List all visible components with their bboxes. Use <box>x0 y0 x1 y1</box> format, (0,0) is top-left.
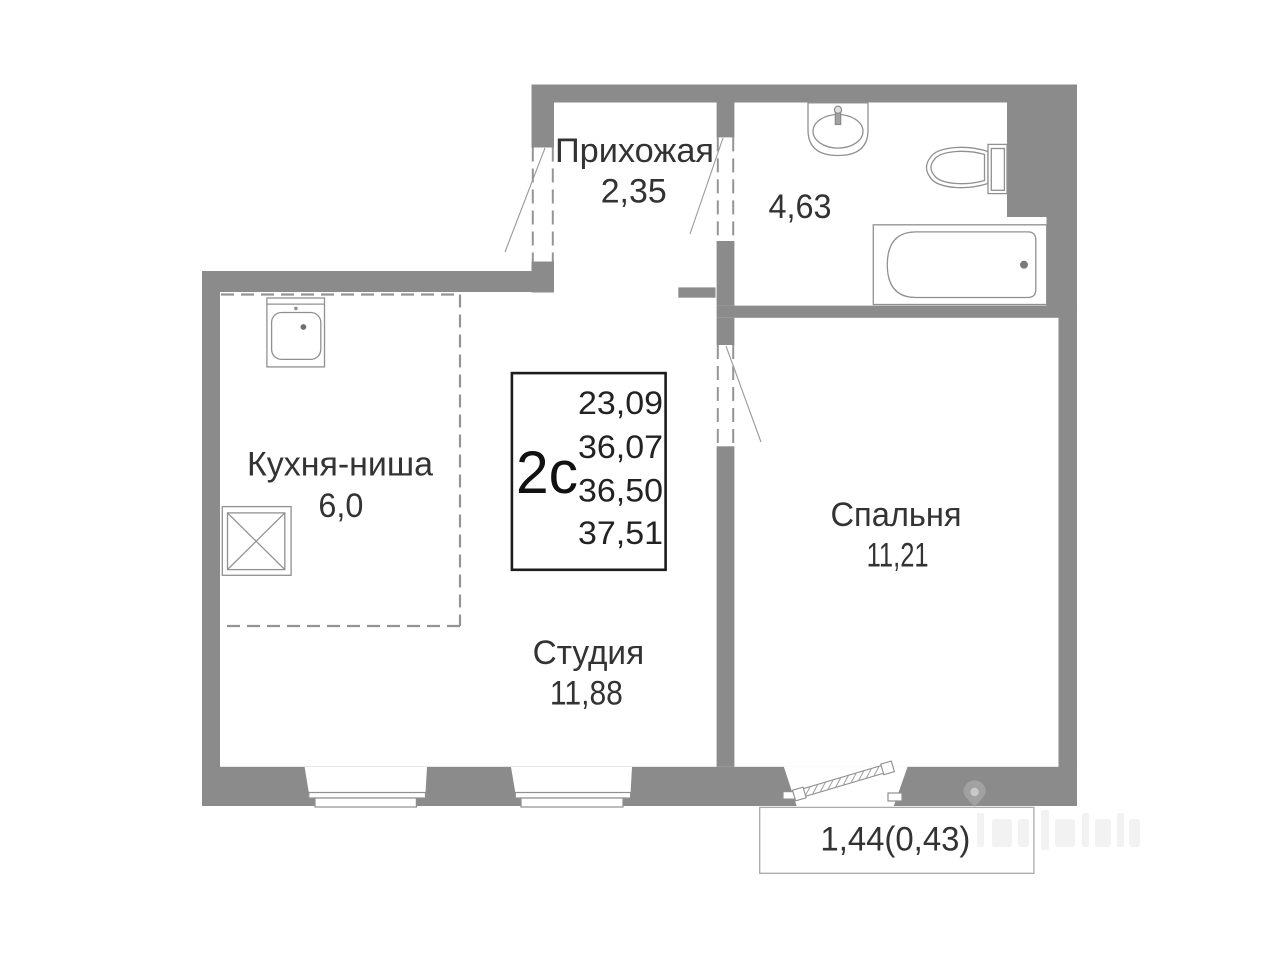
svg-text:11,21: 11,21 <box>867 537 929 575</box>
svg-text:6,0: 6,0 <box>318 487 363 525</box>
svg-text:36,07: 36,07 <box>578 429 663 465</box>
svg-text:Студия: Студия <box>533 634 645 672</box>
svg-text:Прихожая: Прихожая <box>555 132 714 170</box>
svg-text:1,44(0,43): 1,44(0,43) <box>820 821 970 859</box>
svg-text:4,63: 4,63 <box>769 188 832 226</box>
svg-text:36,50: 36,50 <box>578 473 663 509</box>
svg-text:11,88: 11,88 <box>550 674 623 712</box>
svg-text:2,35: 2,35 <box>601 173 667 211</box>
svg-text:37,51: 37,51 <box>578 515 663 551</box>
svg-text:23,09: 23,09 <box>578 385 663 421</box>
svg-text:Спальня: Спальня <box>831 496 962 534</box>
svg-text:2с: 2с <box>516 439 578 506</box>
svg-text:Кухня-ниша: Кухня-ниша <box>247 446 433 484</box>
